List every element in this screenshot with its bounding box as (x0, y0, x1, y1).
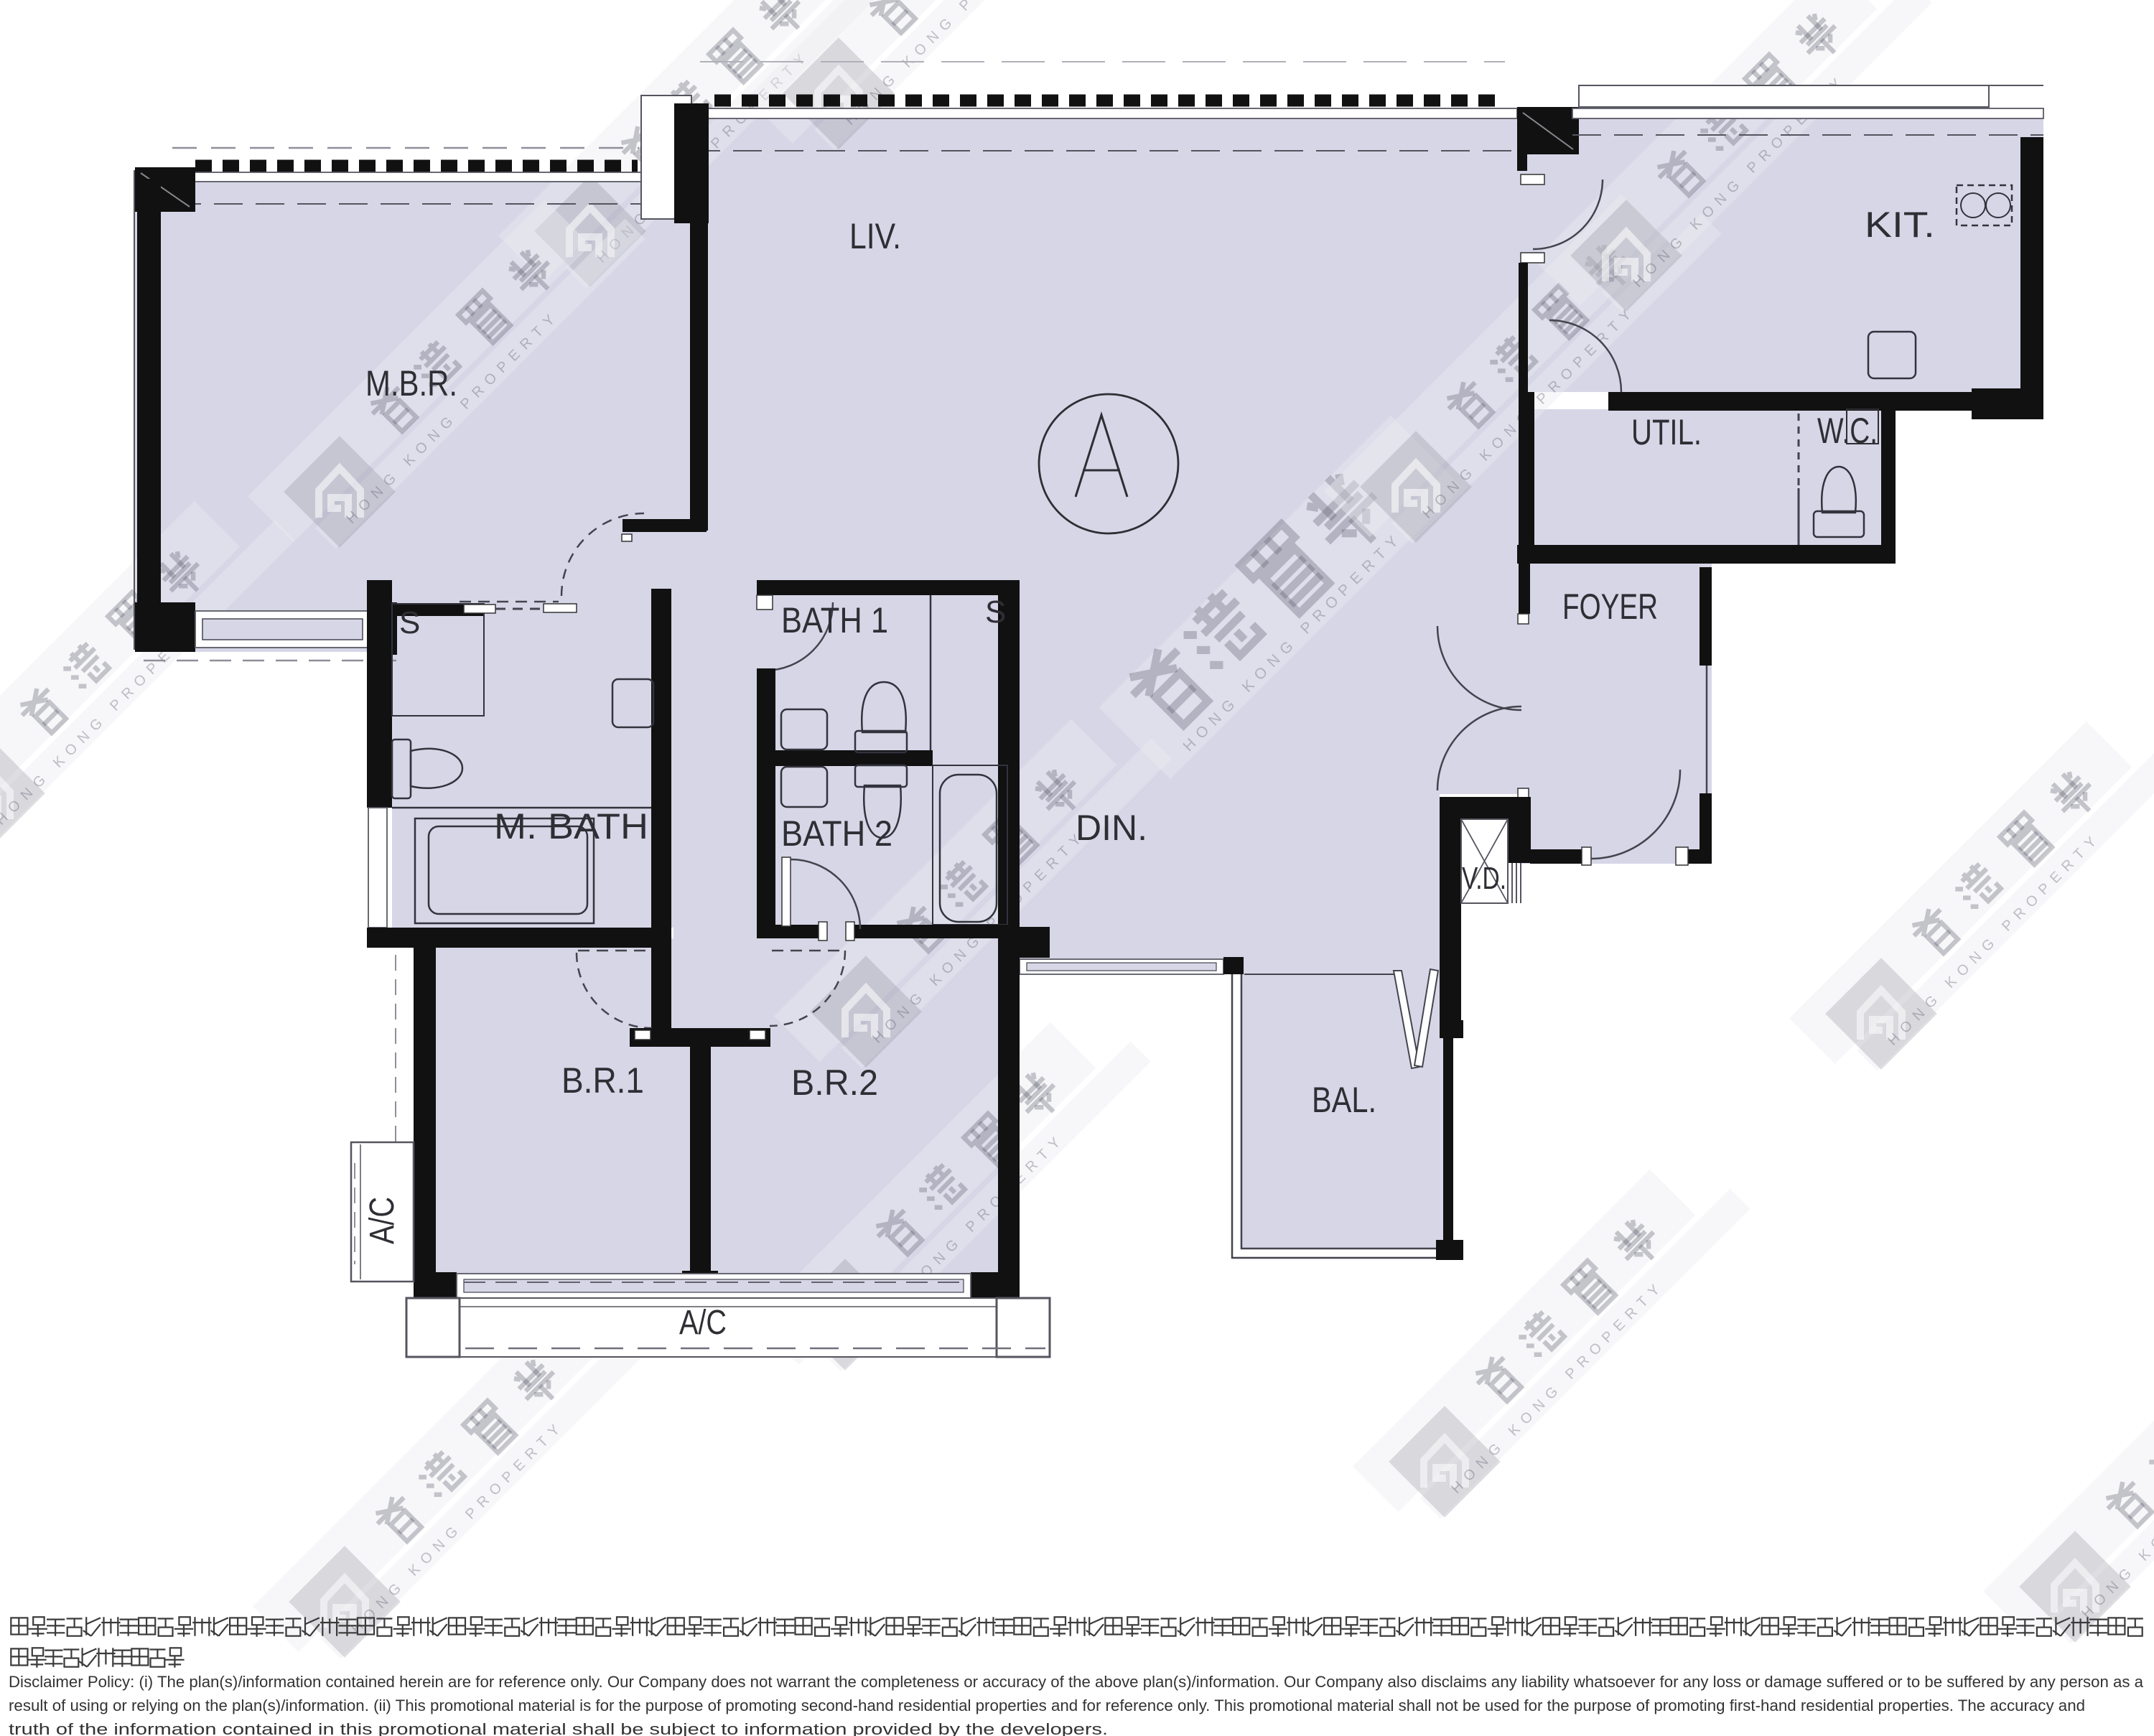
svg-text:B.R.2: B.R.2 (791, 1063, 878, 1103)
svg-text:B.R.1: B.R.1 (561, 1060, 644, 1101)
svg-text:BATH 2: BATH 2 (781, 813, 892, 854)
svg-text:S: S (399, 605, 420, 640)
svg-text:LIV.: LIV. (849, 216, 901, 256)
svg-text:UTIL.: UTIL. (1631, 412, 1702, 452)
svg-text:truth of the information conta: truth of the information contained in th… (9, 1720, 1108, 1736)
svg-text:V.D.: V.D. (1462, 861, 1506, 896)
svg-text:BAL.: BAL. (1312, 1080, 1376, 1120)
svg-text:BATH 1: BATH 1 (781, 600, 888, 640)
svg-text:S: S (985, 594, 1006, 630)
svg-text:M.B.R.: M.B.R. (365, 363, 457, 403)
svg-text:M. BATH: M. BATH (494, 806, 648, 846)
svg-text:FOYER: FOYER (1562, 587, 1658, 627)
svg-text:result of using or relying on: result of using or relying on the plan(s… (9, 1697, 2085, 1714)
svg-text:DIN.: DIN. (1076, 808, 1147, 848)
svg-text:A/C: A/C (679, 1304, 727, 1342)
svg-text:A/C: A/C (363, 1197, 401, 1244)
svg-text:Disclaimer Policy: (i) The pla: Disclaimer Policy: (i) The plan(s)/infor… (9, 1673, 2143, 1691)
svg-text:KIT.: KIT. (1865, 205, 1935, 245)
